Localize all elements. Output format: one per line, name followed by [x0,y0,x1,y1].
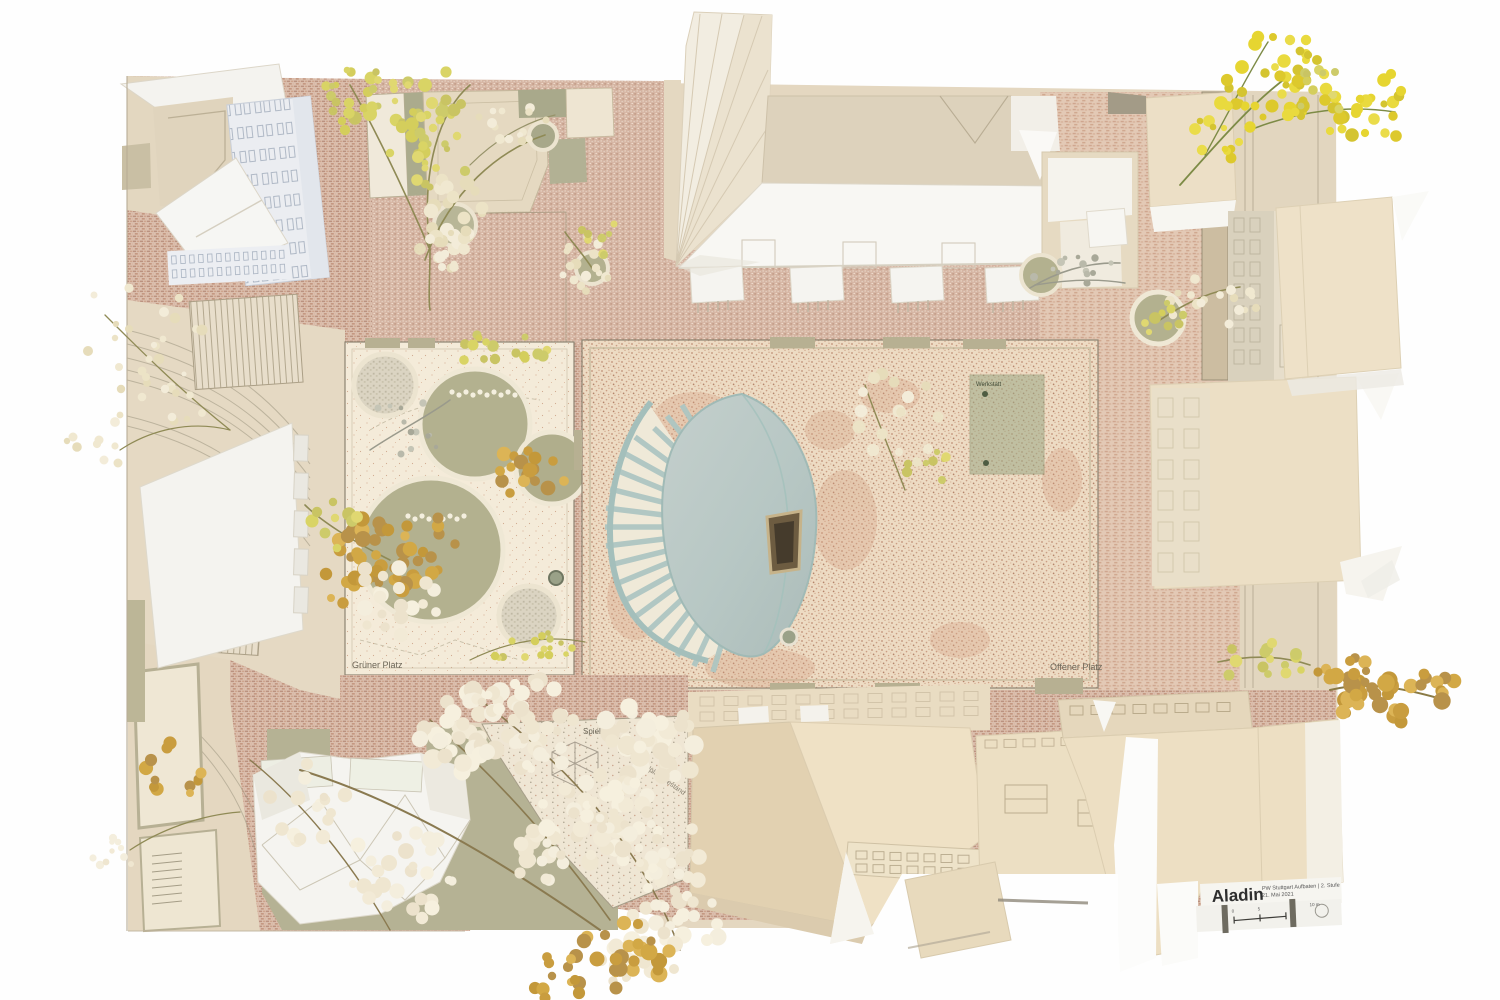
svg-text:Grüner Platz: Grüner Platz [352,660,403,670]
svg-text:Werkstatt: Werkstatt [976,382,1002,388]
svg-text:Aladin: Aladin [1211,885,1264,906]
svg-text:10 m: 10 m [1309,902,1319,907]
svg-text:Offener Platz: Offener Platz [1050,662,1103,672]
